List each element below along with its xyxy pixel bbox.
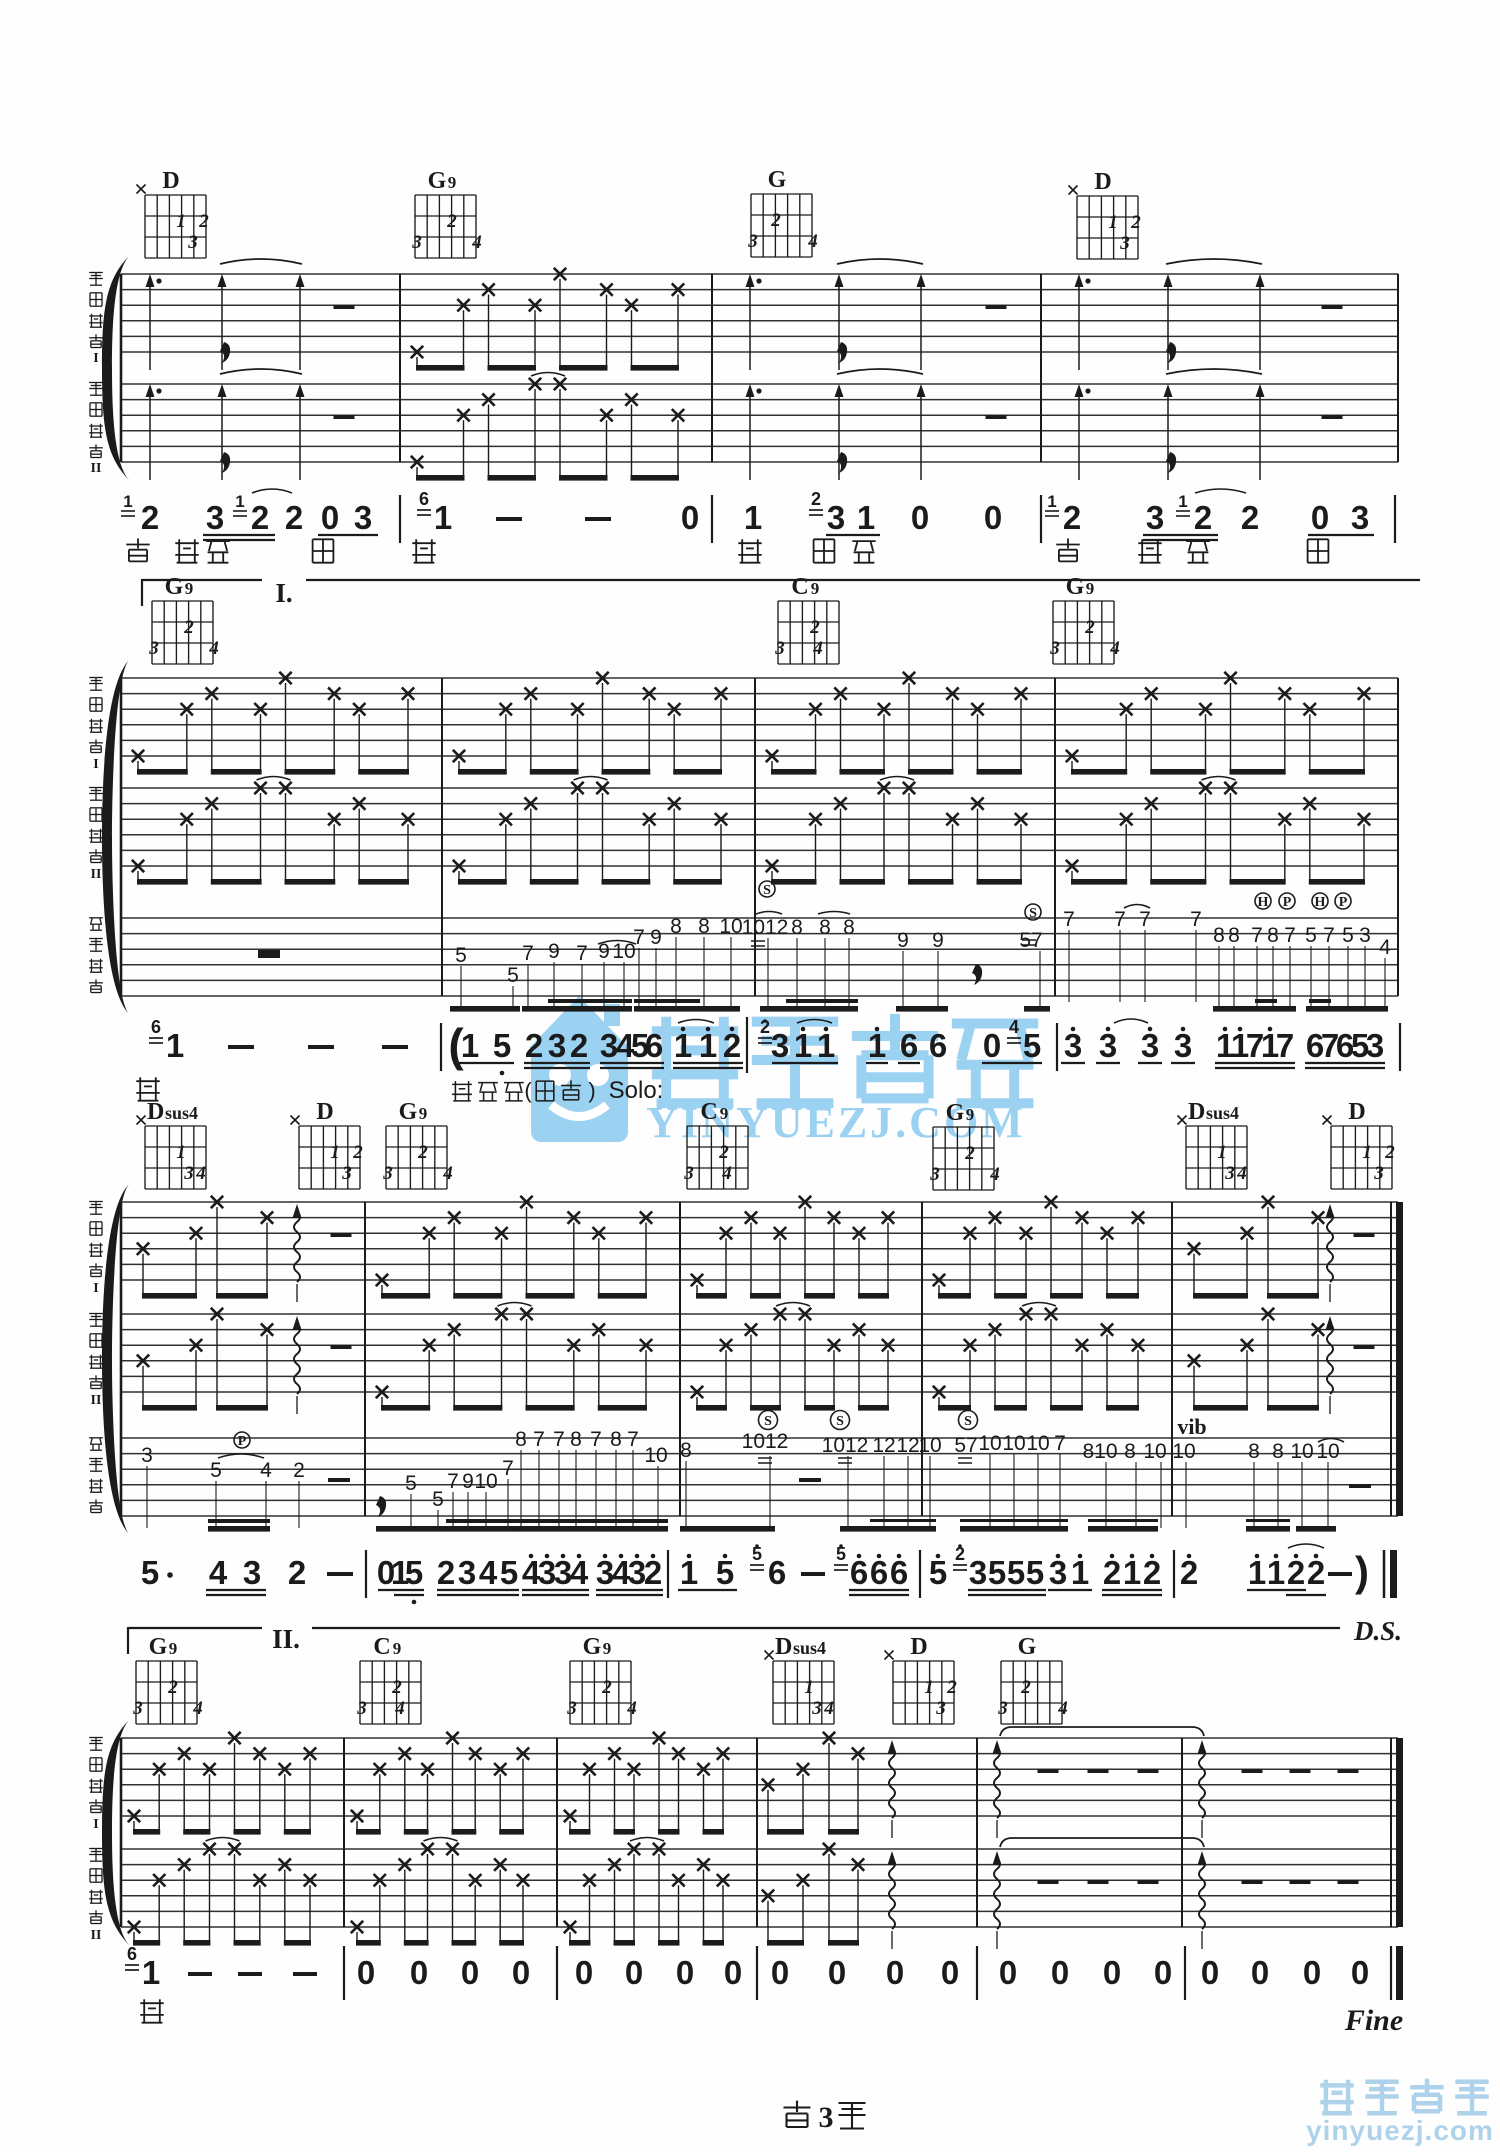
svg-text:7: 7 <box>1276 1027 1294 1064</box>
svg-text:8: 8 <box>1228 924 1240 947</box>
svg-text:9: 9 <box>548 940 560 963</box>
svg-text:2: 2 <box>167 1677 178 1698</box>
svg-text:9: 9 <box>932 929 944 952</box>
svg-text:7: 7 <box>633 926 645 949</box>
svg-text:5: 5 <box>500 1554 518 1591</box>
svg-text:3: 3 <box>187 232 198 253</box>
svg-text:3: 3 <box>811 1698 822 1719</box>
svg-text:4: 4 <box>394 1698 405 1719</box>
svg-text:9: 9 <box>1086 579 1095 598</box>
svg-text:3: 3 <box>929 1164 940 1185</box>
svg-text:6: 6 <box>900 1027 918 1064</box>
svg-text:0: 0 <box>321 499 339 536</box>
svg-text:8: 8 <box>843 916 855 939</box>
svg-text:D: D <box>162 168 179 194</box>
svg-text:1: 1 <box>924 1677 934 1698</box>
svg-text:1: 1 <box>461 1027 479 1064</box>
svg-text:1: 1 <box>817 1027 835 1064</box>
svg-text:6: 6 <box>645 1027 663 1064</box>
svg-text:4: 4 <box>195 1163 206 1184</box>
svg-text:7: 7 <box>627 1428 639 1451</box>
svg-text:0: 0 <box>1251 1954 1269 1991</box>
svg-text:5: 5 <box>1023 1027 1041 1064</box>
svg-text:4: 4 <box>442 1163 453 1184</box>
svg-text:0: 0 <box>512 1954 530 1991</box>
svg-text:7: 7 <box>1054 1432 1066 1455</box>
svg-text:1: 1 <box>1071 1554 1089 1591</box>
svg-text:5: 5 <box>455 944 467 967</box>
svg-text:1012: 1012 <box>742 1430 789 1453</box>
svg-text:3: 3 <box>969 1554 987 1591</box>
svg-text:I: I <box>93 1817 98 1832</box>
svg-text:Fine: Fine <box>1344 2004 1403 2037</box>
svg-text:3: 3 <box>382 1163 393 1184</box>
svg-text:2: 2 <box>718 1142 729 1163</box>
svg-text:2: 2 <box>525 1027 543 1064</box>
svg-text:2: 2 <box>1063 499 1081 536</box>
svg-text:7: 7 <box>1284 924 1296 947</box>
svg-text:D: D <box>1188 1099 1205 1125</box>
svg-text:2: 2 <box>293 1459 305 1482</box>
svg-text:2: 2 <box>1307 1554 1325 1591</box>
svg-text:1: 1 <box>857 499 875 536</box>
svg-text:D.S.: D.S. <box>1353 1616 1402 1646</box>
svg-text:2: 2 <box>417 1142 428 1163</box>
svg-text:D: D <box>1348 1099 1365 1125</box>
svg-text:II.: II. <box>272 1624 300 1654</box>
svg-text:5: 5 <box>1305 924 1317 947</box>
svg-text:2: 2 <box>285 499 303 536</box>
svg-text:6: 6 <box>850 1554 868 1591</box>
svg-text:3: 3 <box>683 1163 694 1184</box>
svg-text:3: 3 <box>1049 638 1060 659</box>
svg-text:6: 6 <box>890 1554 908 1591</box>
svg-text:D: D <box>910 1634 927 1660</box>
svg-text:5: 5 <box>493 1027 511 1064</box>
svg-text:3: 3 <box>827 499 845 536</box>
svg-text:0: 0 <box>410 1954 428 1991</box>
svg-text:1: 1 <box>176 1142 186 1163</box>
svg-text:(: ( <box>524 1078 532 1103</box>
svg-text:7: 7 <box>533 1428 545 1451</box>
svg-text:4: 4 <box>260 1459 272 1482</box>
svg-text:4: 4 <box>192 1698 203 1719</box>
svg-text:3: 3 <box>183 1163 194 1184</box>
svg-text:4: 4 <box>1057 1698 1068 1719</box>
svg-text:8: 8 <box>1248 1440 1260 1463</box>
svg-text:9: 9 <box>650 926 662 949</box>
svg-text:6: 6 <box>419 489 429 509</box>
svg-text:3: 3 <box>771 1027 789 1064</box>
svg-text:3: 3 <box>1146 499 1164 536</box>
svg-text:2: 2 <box>183 617 194 638</box>
svg-text:0: 0 <box>886 1954 904 1991</box>
svg-text:4: 4 <box>208 638 219 659</box>
svg-text:4: 4 <box>479 1554 498 1591</box>
svg-text:2: 2 <box>964 1143 975 1164</box>
svg-text:10: 10 <box>978 1432 1001 1455</box>
svg-text:6: 6 <box>768 1554 786 1591</box>
svg-text:3: 3 <box>132 1698 143 1719</box>
svg-text:sus4: sus4 <box>793 1638 826 1658</box>
svg-text:10: 10 <box>644 1444 667 1467</box>
svg-text:1012: 1012 <box>742 916 789 939</box>
svg-text:2: 2 <box>644 1554 662 1591</box>
svg-text:3: 3 <box>148 638 159 659</box>
svg-text:0: 0 <box>999 1954 1017 1991</box>
svg-text:0: 0 <box>575 1954 593 1991</box>
svg-text:0: 0 <box>771 1954 789 1991</box>
svg-text:2: 2 <box>570 1027 588 1064</box>
svg-text:2: 2 <box>1180 1554 1198 1591</box>
svg-text:7: 7 <box>1323 924 1335 947</box>
svg-text:H: H <box>1315 895 1326 910</box>
svg-text:2: 2 <box>251 499 269 536</box>
svg-text:0: 0 <box>1051 1954 1069 1991</box>
svg-text:5: 5 <box>1342 924 1354 947</box>
svg-text:0: 0 <box>1351 1954 1369 1991</box>
svg-text:8: 8 <box>570 1428 582 1451</box>
svg-text:II: II <box>91 867 102 882</box>
svg-text:10: 10 <box>918 1434 941 1457</box>
svg-text:1: 1 <box>166 1027 184 1064</box>
svg-text:G: G <box>1018 1634 1037 1660</box>
svg-text:8: 8 <box>819 916 831 939</box>
svg-text:10: 10 <box>1172 1440 1195 1463</box>
svg-text:C: C <box>791 574 808 600</box>
svg-text:sus4: sus4 <box>165 1103 198 1123</box>
svg-text:0: 0 <box>681 499 699 536</box>
svg-text:1: 1 <box>680 1554 698 1591</box>
svg-text:3: 3 <box>206 499 224 536</box>
svg-text:D: D <box>147 1099 164 1125</box>
svg-text:2: 2 <box>1384 1142 1395 1163</box>
svg-text:5: 5 <box>432 1488 444 1511</box>
svg-text:3: 3 <box>356 1698 367 1719</box>
svg-text:S: S <box>764 1414 772 1429</box>
svg-text:9: 9 <box>448 173 457 192</box>
svg-text:9: 9 <box>393 1639 402 1658</box>
svg-text:C: C <box>373 1634 390 1660</box>
svg-text:4: 4 <box>807 231 818 252</box>
svg-text:G: G <box>428 168 447 194</box>
svg-text:0: 0 <box>828 1954 846 1991</box>
svg-text:7: 7 <box>1251 924 1263 947</box>
svg-text:D: D <box>316 1099 333 1125</box>
svg-text:0: 0 <box>724 1954 742 1991</box>
svg-text:57: 57 <box>954 1434 977 1457</box>
svg-text:9: 9 <box>419 1104 428 1123</box>
svg-text:G: G <box>1066 574 1085 600</box>
svg-text:2: 2 <box>1194 499 1212 536</box>
svg-text:8: 8 <box>610 1428 622 1451</box>
svg-text:10: 10 <box>1002 1432 1025 1455</box>
svg-text:2: 2 <box>811 489 821 509</box>
svg-text:8: 8 <box>1267 924 1279 947</box>
svg-text:3: 3 <box>1174 1027 1192 1064</box>
svg-text:G: G <box>946 1100 965 1126</box>
svg-text:3: 3 <box>341 1163 352 1184</box>
svg-text:1: 1 <box>176 211 186 232</box>
svg-text:0: 0 <box>625 1954 643 1991</box>
svg-text:3: 3 <box>1366 1027 1384 1064</box>
svg-text:10: 10 <box>1026 1432 1049 1455</box>
svg-text:G: G <box>149 1634 168 1660</box>
svg-text:7: 7 <box>1063 908 1075 931</box>
svg-text:9: 9 <box>169 1639 178 1658</box>
svg-text:6: 6 <box>151 1017 161 1037</box>
svg-text:II: II <box>91 1393 102 1408</box>
svg-text:1: 1 <box>235 492 244 511</box>
svg-text:2: 2 <box>723 1027 741 1064</box>
svg-text:1: 1 <box>123 492 132 511</box>
svg-text:8: 8 <box>680 1439 692 1462</box>
svg-text:3: 3 <box>935 1698 946 1719</box>
svg-text:D: D <box>775 1634 792 1660</box>
svg-text:810: 810 <box>1082 1440 1117 1463</box>
svg-text:9: 9 <box>603 1639 612 1658</box>
svg-text:7: 7 <box>1190 908 1202 931</box>
svg-text:1: 1 <box>1362 1142 1372 1163</box>
svg-text:2: 2 <box>1241 499 1259 536</box>
svg-text:1: 1 <box>1123 1554 1141 1591</box>
svg-text:0: 0 <box>461 1954 479 1991</box>
svg-text:2: 2 <box>809 617 820 638</box>
svg-text:7: 7 <box>1139 908 1151 931</box>
svg-text:3: 3 <box>819 2101 834 2134</box>
svg-text:): ) <box>1355 1548 1369 1595</box>
svg-text:0: 0 <box>1103 1954 1121 1991</box>
svg-text:6: 6 <box>870 1554 888 1591</box>
svg-text:3: 3 <box>566 1698 577 1719</box>
svg-text:P: P <box>1339 895 1348 910</box>
svg-text:3: 3 <box>1359 924 1371 947</box>
svg-text:2: 2 <box>1130 212 1141 233</box>
svg-text:1: 1 <box>744 499 762 536</box>
svg-text:4: 4 <box>1109 638 1120 659</box>
svg-text:7: 7 <box>576 942 588 965</box>
svg-text:0: 0 <box>984 499 1002 536</box>
svg-text:7: 7 <box>522 942 534 965</box>
svg-text:2: 2 <box>770 210 781 231</box>
svg-text:6: 6 <box>127 1944 137 1964</box>
svg-text:2: 2 <box>1084 617 1095 638</box>
svg-text:3: 3 <box>774 638 785 659</box>
svg-text:5: 5 <box>210 1459 222 1482</box>
svg-text:2: 2 <box>1020 1677 1031 1698</box>
svg-text:8: 8 <box>1124 1440 1136 1463</box>
svg-text:I: I <box>93 1281 98 1296</box>
svg-text:10: 10 <box>1316 1440 1339 1463</box>
svg-text:3: 3 <box>1099 1027 1117 1064</box>
svg-text:9: 9 <box>185 579 194 598</box>
svg-text:2: 2 <box>601 1677 612 1698</box>
svg-text:0: 0 <box>1201 1954 1219 1991</box>
svg-text:4: 4 <box>471 232 482 253</box>
svg-text:0: 0 <box>357 1954 375 1991</box>
svg-text:5: 5 <box>1007 1554 1025 1591</box>
svg-text:D: D <box>1094 169 1111 195</box>
svg-text:8: 8 <box>1272 1440 1284 1463</box>
svg-text:2: 2 <box>1143 1554 1161 1591</box>
svg-text:5: 5 <box>716 1554 734 1591</box>
svg-text:3: 3 <box>243 1554 261 1591</box>
svg-text:4: 4 <box>989 1164 1000 1185</box>
svg-text:2: 2 <box>946 1677 957 1698</box>
svg-text:4: 4 <box>812 638 823 659</box>
svg-text:2: 2 <box>391 1677 402 1698</box>
svg-text:S: S <box>836 1414 844 1429</box>
svg-text:1: 1 <box>434 499 452 536</box>
svg-text:0: 0 <box>1311 499 1329 536</box>
svg-text:1: 1 <box>330 1142 340 1163</box>
svg-text:4: 4 <box>823 1698 834 1719</box>
svg-text:G: G <box>165 574 184 600</box>
svg-text:I.: I. <box>275 578 292 608</box>
svg-text:3: 3 <box>1141 1027 1159 1064</box>
svg-text:3: 3 <box>1351 499 1369 536</box>
svg-text:1: 1 <box>1248 1554 1266 1591</box>
svg-text:5: 5 <box>507 964 519 987</box>
svg-text:9: 9 <box>897 929 909 952</box>
svg-text:8: 8 <box>791 916 803 939</box>
svg-text:6: 6 <box>929 1027 947 1064</box>
svg-text:3: 3 <box>411 232 422 253</box>
svg-text:0: 0 <box>676 1954 694 1991</box>
svg-text:9: 9 <box>811 579 820 598</box>
svg-text:2: 2 <box>198 211 209 232</box>
svg-text:P: P <box>238 1434 247 1449</box>
svg-text:0: 0 <box>1154 1954 1172 1991</box>
svg-text:0: 0 <box>911 499 929 536</box>
svg-text:I: I <box>93 757 98 772</box>
svg-text:2: 2 <box>352 1142 363 1163</box>
svg-text:1: 1 <box>142 1954 160 1991</box>
svg-text:9: 9 <box>966 1105 975 1124</box>
svg-text:sus4: sus4 <box>1206 1103 1239 1123</box>
svg-text:2: 2 <box>288 1554 306 1591</box>
svg-text:3: 3 <box>354 499 372 536</box>
svg-text:G: G <box>583 1634 602 1660</box>
svg-text:C: C <box>700 1099 717 1125</box>
svg-text:II: II <box>91 461 102 476</box>
svg-text:1012: 1012 <box>822 1434 869 1457</box>
svg-text:3: 3 <box>1119 233 1130 254</box>
svg-text:1: 1 <box>804 1677 814 1698</box>
svg-text:7: 7 <box>502 1457 514 1480</box>
svg-text:2: 2 <box>1103 1554 1121 1591</box>
svg-text:5: 5 <box>929 1554 947 1591</box>
svg-text:12: 12 <box>872 1434 895 1457</box>
svg-text:G: G <box>399 1099 418 1125</box>
svg-text:10: 10 <box>719 915 742 938</box>
svg-text:1: 1 <box>794 1027 812 1064</box>
svg-text:5: 5 <box>988 1554 1006 1591</box>
svg-text:1: 1 <box>674 1027 692 1064</box>
svg-text:G: G <box>768 167 787 193</box>
svg-text:yinyuezj.com: yinyuezj.com <box>1306 2115 1494 2146</box>
svg-text:S: S <box>763 883 771 898</box>
svg-text:0: 0 <box>941 1954 959 1991</box>
svg-text:3: 3 <box>997 1698 1008 1719</box>
svg-text:P: P <box>1283 895 1292 910</box>
svg-text:7: 7 <box>1114 908 1126 931</box>
svg-text:1: 1 <box>868 1027 886 1064</box>
svg-text:5: 5 <box>141 1554 159 1591</box>
svg-text:3: 3 <box>141 1444 153 1467</box>
svg-text:2: 2 <box>141 499 159 536</box>
svg-text:I: I <box>93 351 98 366</box>
svg-text:4: 4 <box>1009 1017 1019 1037</box>
svg-text:II: II <box>91 1928 102 1943</box>
svg-text:2: 2 <box>446 211 457 232</box>
svg-text:2: 2 <box>437 1554 455 1591</box>
svg-text:10: 10 <box>1143 1440 1166 1463</box>
svg-text:8: 8 <box>698 915 710 938</box>
svg-text:4: 4 <box>721 1163 732 1184</box>
svg-text:0: 0 <box>983 1027 1001 1064</box>
svg-text:H: H <box>1258 895 1269 910</box>
svg-text:5: 5 <box>405 1472 417 1495</box>
svg-text:3: 3 <box>1224 1163 1235 1184</box>
svg-text:4: 4 <box>570 1554 589 1591</box>
svg-text:0: 0 <box>1303 1954 1321 1991</box>
svg-text:9: 9 <box>720 1104 729 1123</box>
svg-text:vib: vib <box>1177 1414 1206 1439</box>
svg-text:9: 9 <box>462 1470 474 1493</box>
svg-text:8: 8 <box>515 1428 527 1451</box>
svg-text:1: 1 <box>1108 212 1118 233</box>
svg-text:4: 4 <box>626 1698 637 1719</box>
svg-text:10: 10 <box>474 1470 497 1493</box>
svg-text:3: 3 <box>1049 1554 1067 1591</box>
svg-text:3: 3 <box>1373 1163 1384 1184</box>
svg-text:7: 7 <box>590 1428 602 1451</box>
svg-text:8: 8 <box>670 915 682 938</box>
svg-text:3: 3 <box>548 1027 566 1064</box>
svg-text:5: 5 <box>405 1554 423 1591</box>
svg-text:7: 7 <box>553 1428 565 1451</box>
svg-text:3: 3 <box>1064 1027 1082 1064</box>
svg-text:4: 4 <box>1379 936 1391 959</box>
svg-text:S: S <box>1029 906 1037 921</box>
svg-text:3: 3 <box>747 231 758 252</box>
svg-text:12: 12 <box>896 1434 919 1457</box>
svg-text:4: 4 <box>1236 1163 1247 1184</box>
svg-text:1: 1 <box>1267 1554 1285 1591</box>
svg-text:7: 7 <box>447 1470 459 1493</box>
svg-text:Solo:: Solo: <box>609 1077 664 1104</box>
svg-text:1: 1 <box>699 1027 717 1064</box>
svg-text:1: 1 <box>1178 492 1187 511</box>
svg-text:10: 10 <box>1290 1440 1313 1463</box>
svg-text:1: 1 <box>1217 1142 1227 1163</box>
svg-text:2: 2 <box>1287 1554 1305 1591</box>
svg-text:1: 1 <box>1047 492 1056 511</box>
svg-text:): ) <box>588 1078 595 1103</box>
svg-text:5: 5 <box>1026 1554 1044 1591</box>
svg-text:3: 3 <box>458 1554 476 1591</box>
svg-text:S: S <box>964 1414 972 1429</box>
svg-text:8: 8 <box>1213 924 1225 947</box>
svg-text:4: 4 <box>209 1554 228 1591</box>
